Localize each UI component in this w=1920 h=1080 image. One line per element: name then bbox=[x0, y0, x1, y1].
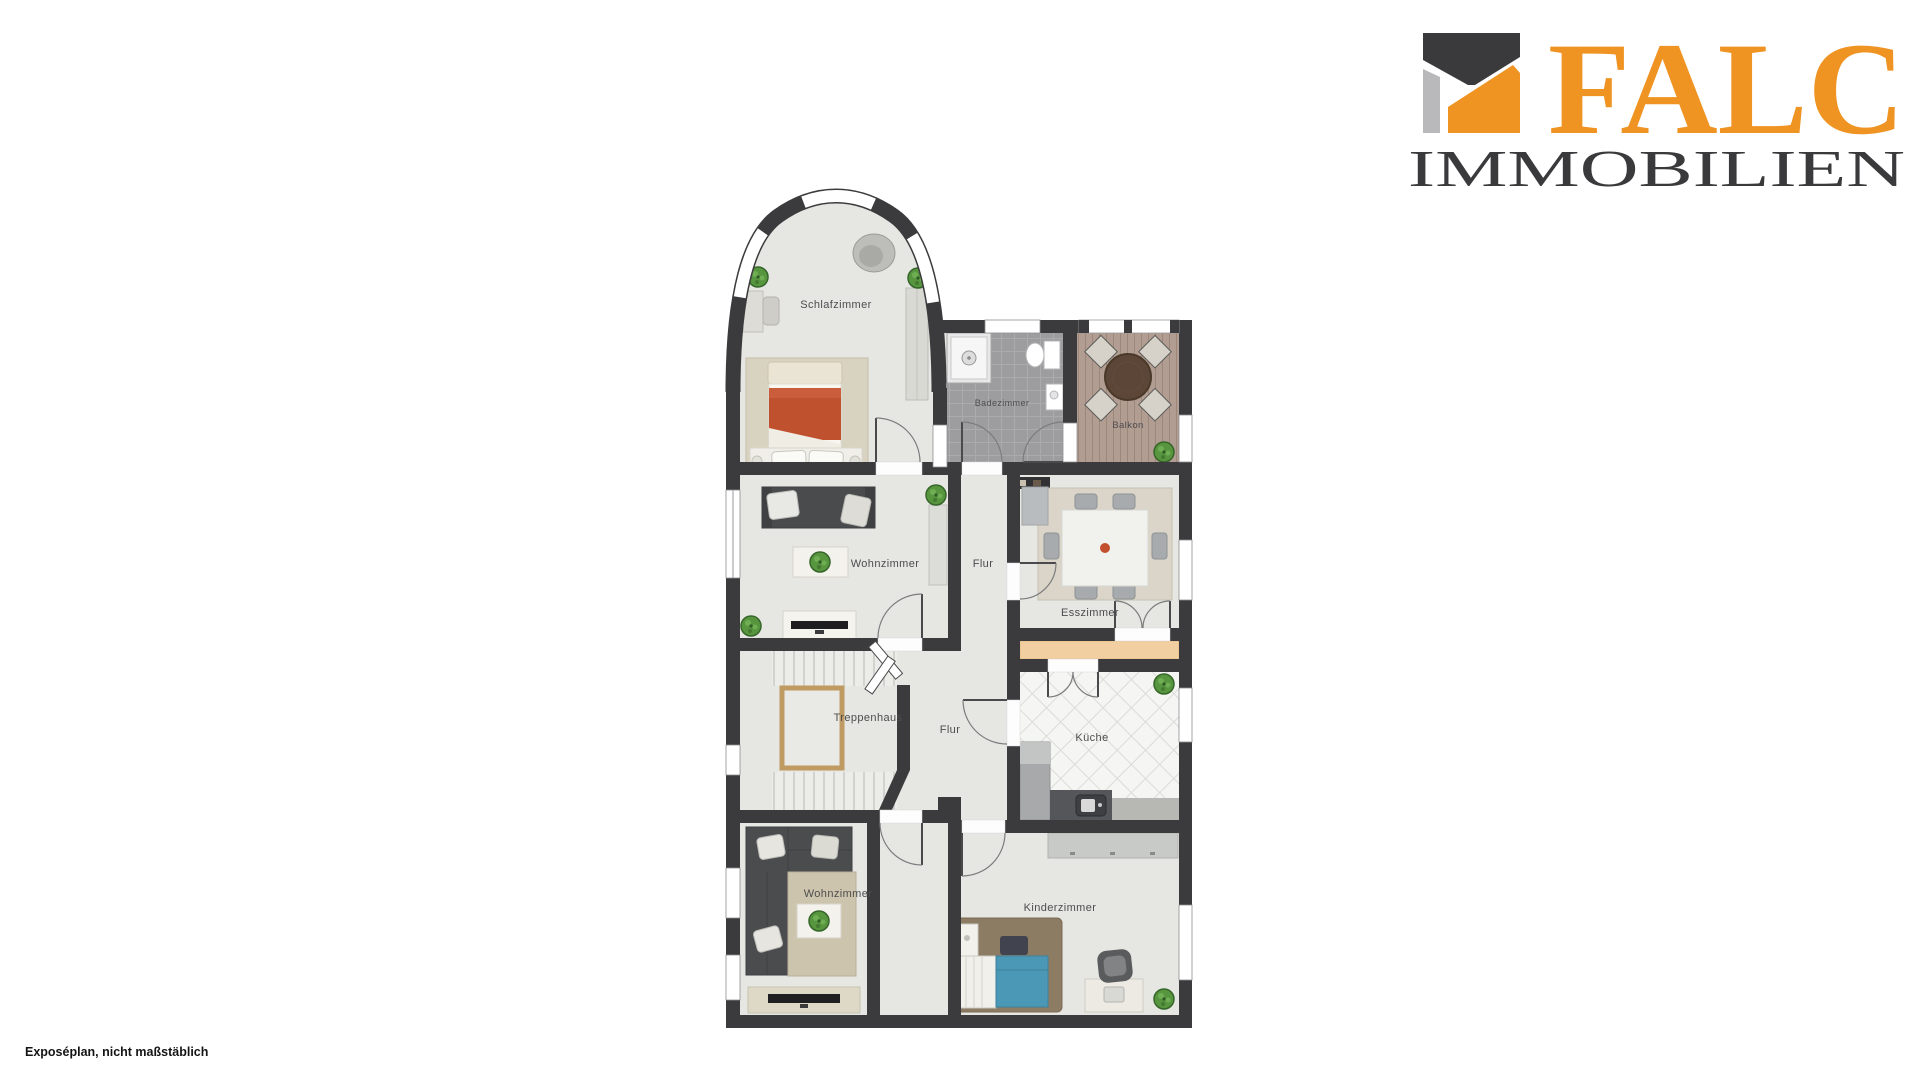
falc-logo-mark bbox=[1423, 33, 1520, 133]
window bbox=[1179, 688, 1192, 742]
plant bbox=[1154, 442, 1174, 462]
screenshot-canvas: FALC IMMOBILIEN bbox=[0, 0, 1920, 1080]
esszimmer-furniture bbox=[1022, 487, 1172, 600]
room-label-schlafzimmer: Schlafzimmer bbox=[800, 299, 871, 311]
plant bbox=[1154, 989, 1174, 1009]
window bbox=[1179, 540, 1192, 600]
coffee-table bbox=[793, 547, 848, 577]
floor-plan: Schlafzimmer Badezimmer Balkon Wohnzimme… bbox=[726, 196, 1192, 1028]
kitchen-counter-right bbox=[1112, 798, 1179, 820]
balcony-railing bbox=[1079, 320, 1179, 333]
logo-subtitle-text: IMMOBILIEN bbox=[1408, 141, 1905, 198]
window bbox=[726, 868, 740, 918]
logo-brand-text: FALC bbox=[1548, 15, 1905, 162]
room-label-wohnzimmer-oben: Wohnzimmer bbox=[851, 558, 920, 570]
shower bbox=[947, 333, 991, 383]
room-label-kinderzimmer: Kinderzimmer bbox=[1024, 902, 1097, 914]
stair-railing bbox=[782, 688, 842, 768]
window bbox=[1179, 415, 1192, 462]
room-label-flur-oben: Flur bbox=[973, 558, 994, 570]
window bbox=[933, 425, 947, 467]
window bbox=[726, 745, 740, 775]
room-label-esszimmer: Esszimmer bbox=[1061, 607, 1119, 619]
balcony-door-glass bbox=[1063, 423, 1077, 462]
room-label-treppenhaus: Treppenhaus bbox=[834, 712, 903, 724]
balcony-table bbox=[1105, 354, 1151, 400]
room-label-wohnzimmer-unten: Wohnzimmer bbox=[804, 888, 873, 900]
room-label-badezimmer: Badezimmer bbox=[975, 398, 1030, 408]
armchair bbox=[853, 234, 895, 272]
tv-sideboard bbox=[783, 611, 856, 640]
plan-caption: Exposéplan, nicht maßstäblich bbox=[25, 1045, 208, 1059]
coffee-table bbox=[797, 904, 841, 938]
plant bbox=[926, 485, 946, 505]
room-label-balkon: Balkon bbox=[1112, 420, 1143, 431]
plant bbox=[741, 616, 761, 636]
window bbox=[726, 955, 740, 1000]
falc-logo: FALC IMMOBILIEN bbox=[1408, 15, 1905, 198]
window bbox=[1179, 905, 1192, 980]
plant bbox=[1154, 674, 1174, 694]
room-label-flur-unten: Flur bbox=[940, 724, 961, 736]
window bbox=[985, 320, 1040, 333]
loggia-strip bbox=[1020, 641, 1179, 659]
kitchen-sink bbox=[1076, 795, 1106, 816]
sink bbox=[1046, 384, 1063, 410]
table-centerpiece bbox=[1100, 543, 1110, 553]
sofa bbox=[762, 487, 875, 528]
kitchen-fridge bbox=[1020, 742, 1050, 764]
room-label-kueche: Küche bbox=[1075, 732, 1108, 744]
radiator bbox=[929, 505, 947, 585]
sideboard bbox=[1022, 487, 1048, 525]
tv-sideboard bbox=[748, 987, 860, 1013]
logo-mark-gray-shape bbox=[1423, 69, 1440, 133]
